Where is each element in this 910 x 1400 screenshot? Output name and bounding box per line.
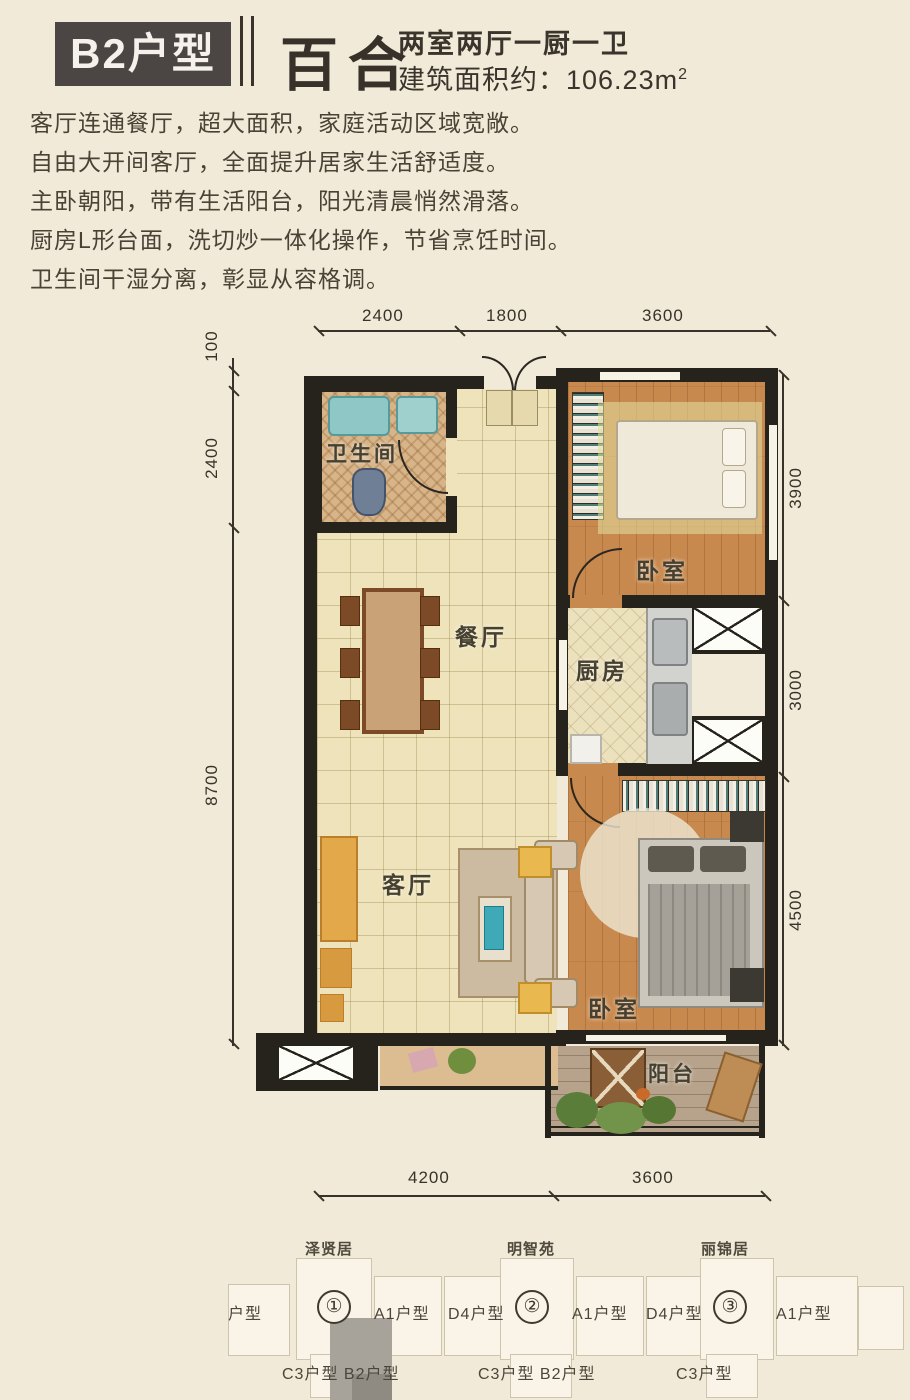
dining-chair <box>420 596 440 626</box>
dim-tick <box>778 1039 789 1050</box>
dim-left-2: 2400 <box>202 428 222 488</box>
kitchen-stove <box>652 682 688 736</box>
unit-label: D4户型 <box>448 1300 504 1324</box>
building-circle-3: ③ <box>713 1290 747 1324</box>
bathtub <box>328 396 390 436</box>
room-spec-text: 两室两厅一厨一卫 <box>398 22 630 61</box>
plant <box>596 1102 646 1134</box>
balcony-shelf <box>590 1048 646 1108</box>
dim-bottom-2: 3600 <box>632 1168 674 1188</box>
description-line: 卫生间干湿分离，彰显从容格调。 <box>30 260 590 299</box>
dim-tick <box>778 369 789 380</box>
shaft-xbox <box>690 716 766 766</box>
dim-line-right <box>782 374 784 1046</box>
dim-top-3: 3600 <box>642 306 684 326</box>
dim-top-2: 1800 <box>486 306 528 326</box>
dim-tick <box>228 1038 239 1049</box>
building-block <box>858 1286 904 1350</box>
side-cabinet <box>320 994 344 1022</box>
toilet <box>352 468 386 516</box>
dining-chair <box>340 648 360 678</box>
tv-cabinet-small <box>320 948 352 988</box>
bathroom-sink <box>396 396 438 434</box>
dining-table <box>362 588 424 734</box>
dining-chair <box>340 596 360 626</box>
dim-right-2: 3000 <box>786 660 806 720</box>
bottom-units-1: C3户型 B2户型 <box>282 1360 399 1384</box>
window <box>558 640 568 710</box>
header-divider <box>240 16 254 86</box>
unit-name-title: 百合 <box>280 18 416 102</box>
description-line: 主卧朝阳，带有生活阳台，阳光清晨悄然滑落。 <box>30 182 590 221</box>
building-circle-1: ① <box>317 1290 351 1324</box>
coffee-table-top <box>484 906 504 950</box>
dining-chair <box>420 700 440 730</box>
dining-label: 餐厅 <box>455 618 507 652</box>
nightstand <box>730 968 764 1002</box>
living-label: 客厅 <box>382 866 434 900</box>
kitchen-sink <box>652 618 688 666</box>
entry-cabinet <box>512 390 538 426</box>
side-table <box>518 982 552 1014</box>
area-superscript: 2 <box>678 66 688 83</box>
unit-type-badge: B2户型 <box>55 22 231 86</box>
unit-label: A1户型 <box>776 1300 832 1324</box>
dim-left-1: 100 <box>202 316 222 376</box>
unit-label: D4户型 <box>646 1300 702 1324</box>
balcony-label: 阳台 <box>648 1058 696 1088</box>
description-line: 客厅连通餐厅，超大面积，家庭活动区域宽敞。 <box>30 104 590 143</box>
pillow <box>700 846 746 872</box>
dining-chair <box>420 648 440 678</box>
dim-top-1: 2400 <box>362 306 404 326</box>
dim-right-1: 3900 <box>786 458 806 518</box>
unit-label: A1户型 <box>374 1300 430 1324</box>
area-value: 建筑面积约：106.23m <box>398 65 678 95</box>
balcony-wall <box>545 1042 551 1138</box>
dim-tick <box>228 522 239 533</box>
plant <box>642 1096 676 1124</box>
dim-line-top <box>318 330 770 332</box>
wall <box>556 382 568 600</box>
unit-label-partial: 户型 <box>228 1300 262 1324</box>
shaft-xbox <box>690 604 766 654</box>
balcony-slider-window <box>586 1034 726 1042</box>
building-circle-2: ② <box>515 1290 549 1324</box>
building-name-3: 丽锦居 <box>690 1238 760 1259</box>
dining-chair <box>340 700 360 730</box>
entry-door-arc-right <box>514 356 546 391</box>
dim-line-left <box>232 358 234 1046</box>
window <box>600 371 680 381</box>
building-name-2: 明智苑 <box>496 1238 566 1259</box>
dim-bottom-1: 4200 <box>408 1168 450 1188</box>
dim-tick <box>778 771 789 782</box>
window <box>768 425 778 560</box>
bottom-units-3: C3户型 <box>676 1360 732 1384</box>
entry-door-arc-left <box>482 356 514 391</box>
area-text: 建筑面积约：106.23m2 <box>398 58 688 97</box>
dim-tick <box>778 595 789 606</box>
porch-plant <box>448 1048 476 1074</box>
bathroom-label: 卫生间 <box>326 438 398 468</box>
floorplan-page: B2户型 百合 两室两厅一厨一卫 建筑面积约：106.23m2 客厅连通餐厅，超… <box>0 0 910 1400</box>
bedroom-bottom-door-opening <box>568 763 618 776</box>
tv-cabinet <box>320 836 358 942</box>
pillow <box>722 470 746 508</box>
kitchen-label: 厨房 <box>576 652 628 686</box>
dim-left-3: 8700 <box>202 755 222 815</box>
flower <box>636 1088 650 1100</box>
fridge <box>570 734 602 764</box>
description-line: 厨房L形台面，洗切炒一体化操作，节省烹饪时间。 <box>30 221 590 260</box>
nightstand <box>730 812 764 842</box>
dim-right-3: 4500 <box>786 880 806 940</box>
shaft-xbox <box>276 1043 356 1083</box>
description-block: 客厅连通餐厅，超大面积，家庭活动区域宽敞。 自由大开间客厅，全面提升居家生活舒适… <box>30 104 590 299</box>
dim-tick <box>228 385 239 396</box>
plant <box>556 1092 598 1128</box>
sofa <box>524 864 554 984</box>
bedroom-bottom-label: 卧室 <box>588 990 640 1024</box>
dim-line-bottom <box>318 1195 765 1197</box>
description-line: 自由大开间客厅，全面提升居家生活舒适度。 <box>30 143 590 182</box>
pillow <box>722 428 746 466</box>
balcony-wall <box>759 1042 765 1138</box>
bedroom-top-label: 卧室 <box>636 552 688 586</box>
dim-tick <box>228 365 239 376</box>
entry-cabinet <box>486 390 512 426</box>
bottom-units-2: C3户型 B2户型 <box>478 1360 595 1384</box>
pillow <box>648 846 694 872</box>
unit-label: A1户型 <box>572 1300 628 1324</box>
building-name-1: 泽贤居 <box>294 1238 364 1259</box>
side-table <box>518 846 552 878</box>
